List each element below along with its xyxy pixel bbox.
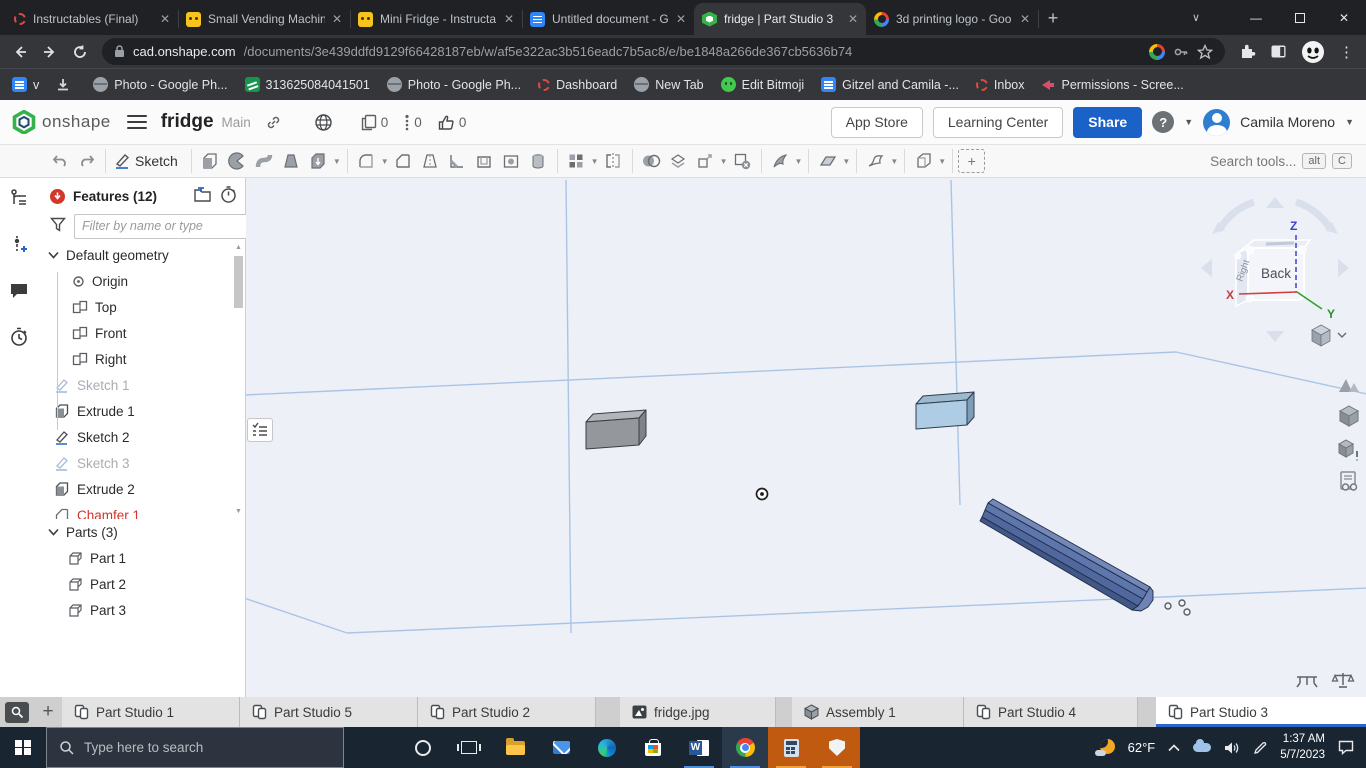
- feature-row-sketch-2[interactable]: Sketch 2: [38, 424, 245, 450]
- boolean-button[interactable]: [638, 147, 665, 175]
- viewcube-back-label: Back: [1261, 266, 1291, 281]
- rib-button[interactable]: [444, 147, 471, 175]
- part-studio-icon: [74, 704, 89, 720]
- plane-button[interactable]: [814, 147, 841, 175]
- filter-row: [38, 210, 245, 242]
- doc-tab-part-studio-1[interactable]: Part Studio 1: [62, 697, 240, 727]
- doc-tab-part-studio-5[interactable]: Part Studio 5: [240, 697, 418, 727]
- image-icon: [632, 705, 647, 719]
- reload-icon[interactable]: [72, 44, 88, 60]
- bookmarks-bar: v Photo - Google Ph... 313625084041501 P…: [0, 68, 1366, 100]
- surface-dropdown-icon[interactable]: ▼: [889, 157, 899, 166]
- cortana-button[interactable]: [400, 727, 446, 768]
- onedrive-icon[interactable]: [1193, 743, 1211, 752]
- close-tab-icon[interactable]: ✕: [848, 12, 858, 26]
- globe-icon: [93, 77, 108, 92]
- likes-counter[interactable]: 0: [438, 114, 467, 131]
- hamburger-menu-icon[interactable]: [127, 115, 147, 130]
- download-icon: [56, 78, 70, 92]
- tab-search-chevron-icon[interactable]: ∨: [1181, 0, 1211, 35]
- part-icon: [68, 577, 83, 592]
- word-button[interactable]: W: [676, 727, 722, 768]
- chrome-button[interactable]: [722, 727, 768, 768]
- profile-avatar[interactable]: [1301, 40, 1325, 64]
- copy-document-icon: [361, 114, 377, 131]
- app-store-button[interactable]: App Store: [831, 107, 923, 138]
- document-glasses-icon[interactable]: [1334, 468, 1364, 496]
- mountains-icon[interactable]: [1334, 370, 1364, 398]
- arrow-icon: [1041, 78, 1055, 92]
- cube-stack-icon[interactable]: [1334, 402, 1364, 430]
- docs-icon: [12, 77, 27, 92]
- help-button[interactable]: ?: [1152, 111, 1174, 133]
- chrome-icon: [736, 738, 755, 757]
- transform-button[interactable]: [692, 147, 719, 175]
- plane-dropdown-icon[interactable]: ▼: [841, 157, 851, 166]
- taskbar-search-input[interactable]: [84, 740, 304, 755]
- history-stopwatch-icon[interactable]: [9, 327, 29, 352]
- system-tray: 62°F 1:37 AM 5/7/2023: [1095, 732, 1366, 763]
- browser-tab-document[interactable]: Untitled document - G ✕: [522, 3, 694, 35]
- part-studio-icon: [1168, 704, 1183, 720]
- viewport-canvas[interactable]: Back Right Z X Y: [246, 178, 1366, 697]
- plane-icon: [72, 300, 88, 314]
- x-axis-label: X: [1226, 288, 1234, 302]
- bookmark-dashboard[interactable]: Dashboard: [538, 78, 617, 92]
- extrude-icon: [54, 481, 70, 497]
- edge-button[interactable]: [584, 727, 630, 768]
- bookmark-sheet[interactable]: 313625084041501: [245, 77, 370, 92]
- cylinder-button[interactable]: [525, 147, 552, 175]
- bookmark-star-icon[interactable]: [1197, 44, 1213, 60]
- part-row-1[interactable]: Part 1: [38, 545, 245, 571]
- feature-row-sketch-1[interactable]: Sketch 1: [38, 372, 245, 398]
- y-axis-label: Y: [1327, 307, 1335, 321]
- shield-icon: [829, 739, 845, 756]
- bookmark-inbox[interactable]: Inbox: [976, 78, 1025, 92]
- bookmark-photos-2[interactable]: Photo - Google Ph...: [387, 77, 521, 92]
- close-tab-icon[interactable]: ✕: [1020, 12, 1030, 26]
- feature-row-extrude-1[interactable]: Extrude 1: [38, 398, 245, 424]
- search-icon: [59, 740, 74, 755]
- part-row-3[interactable]: Part 3: [38, 597, 245, 623]
- close-tab-icon[interactable]: ✕: [504, 12, 514, 26]
- rollback-stopwatch-icon[interactable]: [220, 186, 237, 206]
- public-globe-icon[interactable]: [314, 113, 333, 132]
- undo-button[interactable]: [46, 147, 73, 175]
- browser-navbar: cad.onshape.com /documents/3e439ddfd9129…: [0, 35, 1366, 68]
- help-chevron-icon[interactable]: ▼: [1184, 117, 1193, 127]
- features-panel-header: Features (12): [38, 178, 245, 210]
- side-panel-icon[interactable]: [1270, 43, 1287, 60]
- variables-add-icon[interactable]: [10, 235, 28, 260]
- bitmoji-icon: [721, 77, 736, 92]
- temperature-label[interactable]: 62°F: [1128, 740, 1156, 755]
- edge-icon: [598, 739, 616, 757]
- browser-tab-3dprinting[interactable]: 3d printing logo - Goo ✕: [866, 3, 1038, 35]
- robot-favicon: [186, 12, 201, 27]
- doc-tab-part-studio-2[interactable]: Part Studio 2: [418, 697, 596, 727]
- word-icon: W: [689, 739, 709, 757]
- c-key-badge: C: [1332, 153, 1352, 169]
- parts-section: Parts (3) Part 1 Part 2 Part 3: [38, 519, 245, 623]
- delete-part-button[interactable]: [729, 147, 756, 175]
- doc-tab-part-studio-4[interactable]: Part Studio 4: [964, 697, 1138, 727]
- measure-tool-icon[interactable]: [1292, 669, 1322, 691]
- store-icon: [645, 743, 661, 756]
- part-blue-box[interactable]: [916, 392, 974, 429]
- feature-row-default-geometry[interactable]: Default geometry: [38, 242, 245, 268]
- bookmark-newtab[interactable]: New Tab: [634, 77, 703, 92]
- comments-icon[interactable]: [9, 282, 29, 305]
- workspace-name[interactable]: Main: [222, 115, 251, 130]
- document-tabbar: + Part Studio 1 Part Studio 5 Part Studi…: [0, 697, 1366, 727]
- dotted-line-icon: [404, 114, 410, 131]
- extrude-button[interactable]: [197, 147, 224, 175]
- features-panel-title: Features (12): [73, 189, 185, 204]
- doc-tab-assembly-1[interactable]: Assembly 1: [792, 697, 964, 727]
- view-options-cube-button[interactable]: [1312, 325, 1346, 346]
- sketch-plane-edges: [246, 180, 1366, 633]
- part-studio-icon: [976, 704, 991, 720]
- sheet-metal-dropdown-icon[interactable]: ▼: [937, 157, 947, 166]
- onshape-logo-icon: [12, 110, 36, 134]
- plane-icon: [72, 326, 88, 340]
- pen-icon[interactable]: [1253, 741, 1267, 755]
- sync-status-icon[interactable]: [50, 189, 65, 204]
- docs-icon: [821, 77, 836, 92]
- file-explorer-button[interactable]: [492, 727, 538, 768]
- close-tab-icon[interactable]: ✕: [676, 12, 686, 26]
- shell-button[interactable]: [471, 147, 498, 175]
- thicken-dropdown-icon[interactable]: ▼: [332, 157, 342, 166]
- hole-button[interactable]: [498, 147, 525, 175]
- extensions-puzzle-icon[interactable]: [1239, 43, 1256, 60]
- feature-tree-scrollbar[interactable]: ▲ ▼: [234, 244, 243, 516]
- onshape-logo[interactable]: onshape: [12, 110, 111, 134]
- z-axis-label: Z: [1290, 219, 1297, 233]
- scroll-down-icon[interactable]: ▼: [234, 508, 243, 516]
- url-bar[interactable]: cad.onshape.com /documents/3e439ddfd9129…: [102, 38, 1225, 65]
- transform-dropdown-icon[interactable]: ▼: [719, 157, 729, 166]
- feature-row-front-plane[interactable]: Front: [38, 320, 245, 346]
- browser-menu-dots-icon[interactable]: ⋮: [1339, 43, 1354, 61]
- add-tab-button[interactable]: +: [34, 697, 62, 727]
- globe-icon: [387, 77, 402, 92]
- sketch-icon: [54, 430, 70, 445]
- fillet-dropdown-icon[interactable]: ▼: [380, 157, 390, 166]
- parts-header-row[interactable]: Parts (3): [38, 519, 245, 545]
- bookmark-photos-1[interactable]: Photo - Google Ph...: [93, 77, 227, 92]
- bookmark-v[interactable]: v: [12, 77, 39, 92]
- browser-tabstrip: Instructables (Final) ✕ Small Vending Ma…: [0, 0, 1366, 35]
- feature-row-origin[interactable]: Origin: [38, 268, 245, 294]
- mass-properties-scale-icon[interactable]: [1328, 669, 1358, 691]
- feature-list-flyout-button[interactable]: [247, 418, 273, 442]
- origin-icon: [72, 275, 85, 288]
- view-options-chevron-icon: [1338, 333, 1346, 337]
- close-tab-icon[interactable]: ✕: [332, 12, 342, 26]
- robot-favicon: [358, 12, 373, 27]
- linear-pattern-button[interactable]: [563, 147, 590, 175]
- browser-tab-fridge-active[interactable]: fridge | Part Studio 3 ✕: [694, 3, 866, 35]
- surface-button[interactable]: [862, 147, 889, 175]
- feature-row-top-plane[interactable]: Top: [38, 294, 245, 320]
- window-maximize-button[interactable]: [1278, 0, 1322, 35]
- google-favicon: [874, 12, 889, 27]
- scroll-up-icon[interactable]: ▲: [234, 244, 243, 252]
- calculator-button[interactable]: [768, 727, 814, 768]
- move-face-button[interactable]: [767, 147, 794, 175]
- key-icon[interactable]: [1173, 44, 1189, 60]
- user-avatar[interactable]: [1203, 109, 1230, 136]
- new-folder-icon[interactable]: [193, 187, 212, 206]
- sweep-button[interactable]: [251, 147, 278, 175]
- url-path: /documents/3e439ddfd9129f66428187eb/w/af…: [244, 44, 1141, 59]
- bookmark-bitmoji[interactable]: Edit Bitmoji: [721, 77, 805, 92]
- custom-feature-button[interactable]: +: [958, 149, 985, 173]
- onshape-toolbar: Sketch ▼ ▼ ▼ ▼ ▼ ▼ ▼: [0, 145, 1366, 178]
- part-studio-icon: [252, 704, 267, 720]
- mirror-button[interactable]: [600, 147, 627, 175]
- window-minimize-button[interactable]: —: [1234, 0, 1278, 35]
- url-domain: cad.onshape.com: [133, 44, 236, 59]
- plane-icon: [72, 352, 88, 366]
- close-tab-icon[interactable]: ✕: [160, 12, 170, 26]
- doc-tab-part-studio-3-active[interactable]: Part Studio 3: [1156, 697, 1366, 727]
- part-icon: [68, 603, 83, 618]
- part-row-2[interactable]: Part 2: [38, 571, 245, 597]
- user-name: Camila Moreno: [1240, 114, 1335, 130]
- chevron-down-icon[interactable]: [48, 251, 59, 259]
- feature-row-chamfer-1[interactable]: Chamfer 1: [38, 502, 245, 519]
- time-label: 1:37 AM: [1280, 732, 1325, 748]
- feature-row-sketch-3[interactable]: Sketch 3: [38, 450, 245, 476]
- origin-marker[interactable]: [757, 489, 768, 500]
- feature-row-extrude-2[interactable]: Extrude 2: [38, 476, 245, 502]
- fillet-button[interactable]: [353, 147, 380, 175]
- sketch-points[interactable]: [1165, 600, 1190, 615]
- globe-icon: [634, 77, 649, 92]
- tree-connector-line: [57, 272, 58, 430]
- share-button[interactable]: Share: [1073, 107, 1142, 138]
- cortana-icon: [415, 740, 431, 756]
- docs-favicon: [530, 12, 545, 27]
- moon-cloud-icon: [1095, 739, 1115, 757]
- taskbar-search[interactable]: [46, 727, 344, 768]
- versions-counter[interactable]: 0: [404, 114, 422, 131]
- pencil-icon: [113, 152, 131, 170]
- browser-tab-minifridge[interactable]: Mini Fridge - Instructa ✕: [350, 3, 522, 35]
- alt-key-badge: alt: [1302, 153, 1326, 169]
- user-menu-chevron-icon[interactable]: ▼: [1345, 117, 1354, 127]
- revolve-button[interactable]: [224, 147, 251, 175]
- dashed-circle-icon: [976, 79, 988, 91]
- part-blue-bar[interactable]: [980, 499, 1153, 611]
- assembly-icon: [804, 704, 819, 720]
- bookmark-downloads[interactable]: [56, 78, 76, 92]
- forward-icon[interactable]: [42, 44, 58, 60]
- search-tools[interactable]: Search tools... alt C: [1210, 153, 1352, 169]
- part-icon: [68, 551, 83, 566]
- task-view-icon: [461, 741, 477, 754]
- loft-button[interactable]: [278, 147, 305, 175]
- scrollbar-thumb[interactable]: [234, 256, 243, 308]
- redo-button[interactable]: [73, 147, 100, 175]
- dashed-circle-favicon: [14, 13, 26, 25]
- part-gray-box[interactable]: [586, 410, 646, 449]
- date-label: 5/7/2023: [1280, 748, 1325, 764]
- thicken-button[interactable]: [305, 147, 332, 175]
- doc-tab-fridge-jpg[interactable]: fridge.jpg: [620, 697, 776, 727]
- left-rail: [0, 178, 38, 697]
- sheet-metal-button[interactable]: [910, 147, 937, 175]
- view-cube[interactable]: Back Right Z X Y: [1226, 219, 1335, 321]
- browser-tab-vending[interactable]: Small Vending Machin ✕: [178, 3, 350, 35]
- calculator-icon: [784, 739, 799, 757]
- thumbs-up-icon: [438, 114, 455, 131]
- folder-icon: [506, 741, 525, 755]
- store-button[interactable]: [630, 727, 676, 768]
- filter-input[interactable]: [74, 214, 253, 239]
- draft-button[interactable]: [417, 147, 444, 175]
- action-center-icon[interactable]: [1338, 740, 1354, 755]
- bookmark-permissions[interactable]: Permissions - Scree...: [1041, 78, 1183, 92]
- bookmark-gitzel-camila[interactable]: Gitzel and Camila -...: [821, 77, 959, 92]
- chevron-down-icon[interactable]: [48, 528, 59, 536]
- features-panel: Features (12) Default geometry Origin To…: [38, 178, 246, 697]
- start-button[interactable]: [0, 727, 46, 768]
- link-icon[interactable]: [265, 114, 282, 131]
- lock-icon[interactable]: [114, 45, 125, 58]
- part-studio-icon: [430, 704, 445, 720]
- window-close-button[interactable]: ✕: [1322, 0, 1366, 35]
- filter-funnel-icon[interactable]: [50, 217, 66, 235]
- learning-center-button[interactable]: Learning Center: [933, 107, 1063, 138]
- cube-alert-icon[interactable]: [1334, 436, 1364, 464]
- back-icon[interactable]: [12, 44, 28, 60]
- sketch-button[interactable]: Sketch: [111, 147, 186, 175]
- weather-button[interactable]: [1095, 739, 1115, 757]
- spreadsheet-icon: [245, 77, 260, 92]
- tray-chevron-icon[interactable]: [1168, 744, 1180, 752]
- feature-row-right-plane[interactable]: Right: [38, 346, 245, 372]
- security-button[interactable]: [814, 727, 860, 768]
- tab-search-button[interactable]: [0, 697, 34, 727]
- chamfer-button[interactable]: [390, 147, 417, 175]
- copies-counter[interactable]: 0: [361, 114, 389, 131]
- windows-taskbar: W 62°F 1:37 AM 5/7/2023: [0, 727, 1366, 768]
- mail-icon: [553, 741, 570, 754]
- pattern-dropdown-icon[interactable]: ▼: [590, 157, 600, 166]
- mail-button[interactable]: [538, 727, 584, 768]
- feature-list-panel-icon[interactable]: [9, 188, 29, 213]
- google-icon[interactable]: [1149, 44, 1165, 60]
- taskbar-clock[interactable]: 1:37 AM 5/7/2023: [1280, 732, 1325, 763]
- onshape-favicon: [702, 12, 717, 27]
- document-title: fridge: [161, 111, 214, 133]
- split-button[interactable]: [665, 147, 692, 175]
- new-tab-button[interactable]: +: [1038, 3, 1068, 33]
- browser-tab-instructables[interactable]: Instructables (Final) ✕: [6, 3, 178, 35]
- move-face-dropdown-icon[interactable]: ▼: [794, 157, 804, 166]
- screen: Instructables (Final) ✕ Small Vending Ma…: [0, 0, 1366, 768]
- chamfer-icon: [54, 508, 70, 520]
- volume-icon[interactable]: [1224, 741, 1240, 755]
- windows-logo-icon: [15, 740, 31, 756]
- dashed-circle-icon: [538, 79, 550, 91]
- sketch-icon: [54, 456, 70, 471]
- task-view-button[interactable]: [446, 727, 492, 768]
- feature-tree: Default geometry Origin Top Front Right …: [38, 242, 245, 519]
- onshape-header: onshape fridge Main 0 0 0 App Store Lear…: [0, 100, 1366, 145]
- viewport[interactable]: Back Right Z X Y: [246, 178, 1366, 697]
